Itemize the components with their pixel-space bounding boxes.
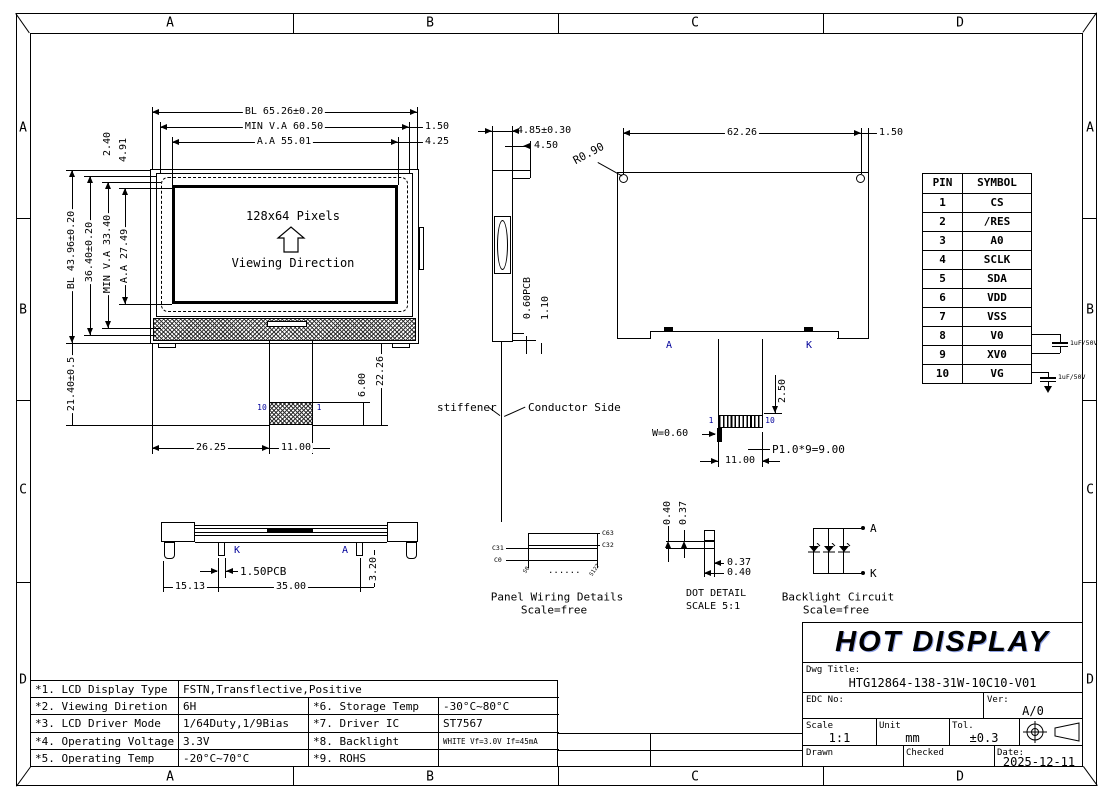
dim-conn-width: 11.00 <box>723 456 757 466</box>
table-row: 5SDA <box>923 269 1031 288</box>
company-banner: HOT DISPLAY <box>803 623 1082 663</box>
drawing-line <box>66 343 153 344</box>
drawing-line <box>823 767 824 786</box>
wiring-c0-label: C0 <box>494 557 502 564</box>
spec-label: *4. Operating Voltage <box>31 733 179 750</box>
drawing-line <box>492 170 530 171</box>
drawing-line <box>66 425 269 426</box>
drawing-line <box>718 339 719 415</box>
front-pin10-label: 10 <box>255 404 269 412</box>
drawing-line <box>478 131 514 132</box>
drawing-line <box>267 529 313 533</box>
dim-conn-offset: 2.50 <box>778 377 788 405</box>
table-row: 8V0 <box>923 326 1031 345</box>
spec-label: *9. ROHS <box>309 750 439 767</box>
edge-clip-a <box>356 542 363 556</box>
dim-hole-offset: 1.50 <box>877 128 905 138</box>
drawing-line <box>839 546 849 552</box>
drawing-line <box>278 227 304 252</box>
front-fpc-connector <box>269 402 313 425</box>
spec-label: *8. Backlight <box>309 733 439 750</box>
drawing-line <box>903 746 904 767</box>
dim-aa-height: A.A 27.49 <box>120 227 130 285</box>
drawing-line <box>813 573 863 574</box>
dot-dim-v2: 0.37 <box>679 499 689 527</box>
drawing-line <box>868 128 869 172</box>
dim-va-width: MIN V.A 60.50 <box>243 122 325 132</box>
viewing-direction-label: Viewing Direction <box>230 257 357 269</box>
zone-bottom-b: B <box>426 771 434 784</box>
dim-thickness2: 4.50 <box>534 141 558 151</box>
drawing-line: /RES <box>963 213 1031 231</box>
dot-detail-scale: SCALE 5:1 <box>686 602 740 612</box>
wiring-c31-label: C31 <box>492 545 504 552</box>
capacitor-plate <box>1040 377 1056 379</box>
drawing-line <box>665 541 671 548</box>
drawing-line <box>762 458 769 464</box>
drawing-line <box>492 126 493 170</box>
drawing-line <box>1031 353 1060 354</box>
projection-symbol-icon <box>1021 720 1083 744</box>
drawing-line <box>1019 719 1020 745</box>
edge-leg-right <box>406 542 417 559</box>
zone-top-b: B <box>426 17 434 30</box>
back-fpc-connector <box>718 415 763 428</box>
drawing-line <box>650 331 838 332</box>
spec-value <box>439 750 559 767</box>
drawing-line <box>269 425 270 454</box>
dim-edge-right: 1.50 <box>423 122 451 132</box>
company-name: HOT DISPLAY <box>835 626 1050 659</box>
dim-back-width: 62.26 <box>725 128 759 138</box>
back-hole-right <box>856 174 865 183</box>
edge-a-label: A <box>340 546 350 556</box>
front-view-foot-left <box>158 343 176 348</box>
drawing-line: VDD <box>963 289 1031 307</box>
wiring-c32-label: C32 <box>602 542 614 549</box>
drawing-line <box>861 526 865 530</box>
conductor-side-label: Conductor Side <box>528 402 621 413</box>
table-row: 1CS <box>923 193 1031 212</box>
dwg-title-row: Dwg Title: HTG12864-138-31W-10C10-V01 <box>803 663 1082 693</box>
side-view-fpc-tail <box>501 342 502 522</box>
zone-top-a: A <box>166 17 174 30</box>
spec-table: *1. LCD Display Type FSTN,Transflective,… <box>30 680 558 767</box>
cap1-label: 1uF/50V <box>1070 340 1097 347</box>
drawing-line <box>312 341 313 402</box>
drawing-line: A0 <box>963 232 1031 250</box>
drawing-line <box>312 402 370 403</box>
zone-right-d: D <box>1086 674 1094 687</box>
viewing-direction-arrow-icon <box>275 224 307 256</box>
drawing-line <box>528 545 600 546</box>
back-pad-k-label: K <box>804 341 814 351</box>
table-row: 2/RES <box>923 212 1031 231</box>
front-pin1-label: 1 <box>315 404 324 412</box>
drawing-line <box>764 413 782 414</box>
dim-tail-total: 22.26 <box>376 354 386 388</box>
zone-left-d: D <box>19 674 27 687</box>
drawing-line <box>84 176 156 177</box>
drawing-line <box>119 304 172 305</box>
zone-right-b: B <box>1086 304 1094 317</box>
led-icon <box>822 543 836 557</box>
spec-label: *3. LCD Driver Mode <box>31 715 179 732</box>
drawing-line <box>1055 723 1079 741</box>
sign-row: Drawn Checked Date: 2025-12-11 <box>803 746 1082 767</box>
drawing-line: 10 <box>923 365 963 383</box>
drawing-line <box>704 570 711 576</box>
drawing-line <box>160 124 167 130</box>
drawing-line: 6 <box>923 289 963 307</box>
dot-detail-title: DOT DETAIL <box>686 589 746 599</box>
backlight-cathode-label: K <box>870 568 877 579</box>
drawing-line: 5 <box>923 270 963 288</box>
zone-left-b: B <box>19 304 27 317</box>
scale-value: 1:1 <box>803 731 876 745</box>
spec-label: *2. Viewing Diretion <box>31 698 179 715</box>
back-pad-k <box>804 327 813 331</box>
drawing-line <box>711 458 718 464</box>
drawing-line <box>854 130 861 136</box>
drawing-line <box>69 336 75 343</box>
drawing-line <box>226 568 233 574</box>
table-row: 3A0 <box>923 231 1031 250</box>
drawing-line: VG <box>963 365 1031 383</box>
dim-edge-width: 35.00 <box>274 582 308 592</box>
back-pad-a-label: A <box>664 341 674 351</box>
drawing-line: SCLK <box>963 251 1031 269</box>
drawing-line: SYMBOL <box>963 174 1031 193</box>
drawing-line <box>1031 372 1048 373</box>
drawing-line <box>681 541 687 548</box>
drawing-line <box>823 13 824 33</box>
spec-value: ST7567 <box>439 715 559 732</box>
drawing-line <box>16 400 30 401</box>
drawing-line <box>817 543 820 546</box>
date-value: 2025-12-11 <box>994 755 1084 769</box>
drawn-label: Drawn <box>806 748 833 758</box>
ver-value: A/0 <box>983 704 1083 718</box>
zone-right-c: C <box>1086 484 1094 497</box>
zone-right-a: A <box>1086 122 1094 135</box>
drawing-line <box>558 750 802 751</box>
front-view-slot <box>267 321 307 327</box>
drawing-line <box>512 178 530 179</box>
drawing-line <box>530 170 531 178</box>
dim-conn-height: 6.00 <box>358 371 368 399</box>
spec-label: *5. Operating Temp <box>31 750 179 767</box>
edge-k-label: K <box>232 546 242 556</box>
drawing-line <box>541 343 542 354</box>
spec-value: -30°C~80°C <box>439 698 559 715</box>
drawing-line <box>709 431 716 437</box>
drawing-line <box>409 122 410 173</box>
back-pad-a <box>664 327 673 331</box>
drawing-line <box>666 548 714 549</box>
drawing-line <box>762 339 763 415</box>
zone-bottom-d: D <box>956 771 964 784</box>
drawing-line <box>861 133 878 134</box>
drawing-line <box>211 568 218 574</box>
drawing-line <box>558 13 559 33</box>
drawing-line <box>650 331 651 339</box>
back-view-body <box>617 172 869 339</box>
dot-dim-v1: 0.40 <box>663 499 673 527</box>
unit-label: Unit <box>879 721 901 731</box>
drawing-line <box>1060 346 1061 353</box>
drawing-line <box>402 124 409 130</box>
drawing-line <box>824 546 834 552</box>
drawing-line <box>714 560 721 566</box>
drawing-line <box>152 109 159 115</box>
dim-pcb-edge: 1.50PCB <box>240 566 286 577</box>
drawing-line <box>195 525 387 526</box>
zone-left-a: A <box>19 122 27 135</box>
edc-row: EDC No: Ver: A/0 <box>803 693 1082 719</box>
backlight-circuit-title: Backlight Circuit <box>780 592 897 603</box>
zone-bottom-c: C <box>691 771 699 784</box>
drawing-line <box>293 767 294 786</box>
wiring-c63-label: C63 <box>602 530 614 537</box>
dim-edge-left: 15.13 <box>173 582 207 592</box>
cap2-label: 1uF/50V <box>1058 374 1085 381</box>
edge-clip-k <box>218 542 225 556</box>
drawing-line <box>558 767 559 786</box>
zone-bottom-a: A <box>166 771 174 784</box>
front-view-side-bump <box>419 227 424 270</box>
scale-label: Scale <box>806 721 833 731</box>
drawing-line: 2 <box>923 213 963 231</box>
dim-pitch: P1.0*9=9.00 <box>772 444 845 455</box>
drawing-line <box>623 130 630 136</box>
drawing-line: 8 <box>923 327 963 345</box>
wiring-dots: ...... <box>548 567 581 576</box>
drawing-line <box>363 402 364 425</box>
edge-view-right-block <box>387 522 418 542</box>
dim-thickness: 4.85±0.30 <box>517 126 571 136</box>
spec-value: WHITE Vf=3.0V If=45mA <box>439 733 559 750</box>
spec-label: *6. Storage Temp <box>309 698 439 715</box>
drawing-line: PIN <box>923 174 963 193</box>
drawing-line: VSS <box>963 308 1031 326</box>
drawing-line <box>838 331 839 339</box>
tol-label: Tol. <box>952 721 974 731</box>
drawing-line <box>1083 400 1097 401</box>
drawing-line <box>528 533 600 534</box>
dim-edge-height: 3.20 <box>369 555 379 583</box>
backlight-circuit-scale: Scale=free <box>801 605 871 616</box>
drawing-line: SDA <box>963 270 1031 288</box>
drawing-line <box>410 109 417 115</box>
drawing-line <box>558 733 802 734</box>
dim-pcb-side: 0.60PCB <box>523 275 533 321</box>
dim-va-height: MIN V.A 33.40 <box>103 213 113 295</box>
dim-top-offset: 2.40 <box>103 130 113 158</box>
spec-value: 1/64Duty,1/9Bias <box>179 715 309 732</box>
dwg-title-label: Dwg Title: <box>806 665 860 675</box>
drawing-line <box>269 341 270 402</box>
drawing-line <box>102 328 161 329</box>
drawing-line <box>152 445 159 451</box>
drawing-line <box>861 128 862 174</box>
table-row: 9XV0 <box>923 345 1031 364</box>
drawing-line <box>1083 218 1097 219</box>
drawing-line <box>847 543 850 546</box>
capacitor-plate <box>1052 342 1068 344</box>
zone-left-c: C <box>19 484 27 497</box>
ground-icon <box>1044 386 1052 393</box>
side-view-lens <box>497 220 508 270</box>
drawing-line <box>650 733 651 767</box>
drawing-line <box>87 176 93 183</box>
drawing-line <box>832 543 835 546</box>
drawing-line <box>16 582 30 583</box>
drawing-line <box>225 558 226 578</box>
drawing-line <box>813 528 863 529</box>
drawing-line <box>1031 334 1060 335</box>
drawing-line <box>398 137 399 185</box>
drawing-line <box>651 331 837 340</box>
panel-wiring-scale: Scale=free <box>519 605 589 616</box>
dim-tail-height: 21.40±0.5 <box>67 355 77 413</box>
drawing-line <box>684 530 685 541</box>
drawing-line <box>668 526 669 541</box>
drawing-line <box>506 548 597 549</box>
unit-value: mm <box>876 731 949 745</box>
pin-table-header: PINSYMBOL <box>923 174 1031 193</box>
dwg-title-value: HTG12864-138-31W-10C10-V01 <box>803 676 1082 690</box>
spec-label: *1. LCD Display Type <box>31 681 179 698</box>
spec-value: 6H <box>179 698 309 715</box>
checked-label: Checked <box>906 748 944 758</box>
drawing-line: CS <box>963 194 1031 212</box>
drawing-line <box>512 340 536 341</box>
drawing-line <box>417 107 418 169</box>
title-block: HOT DISPLAY Dwg Title: HTG12864-138-31W-… <box>802 622 1083 767</box>
zone-top-d: D <box>956 17 964 30</box>
edge-leg-left <box>164 542 175 559</box>
drawing-line: 7 <box>923 308 963 326</box>
led-icon <box>837 543 851 557</box>
dim-glass-height: 36.40±0.20 <box>85 220 95 284</box>
drawing-line <box>87 328 93 335</box>
dot-detail-square <box>704 530 715 541</box>
drawing-line <box>195 535 387 536</box>
zone-top-c: C <box>691 17 699 30</box>
drawing-line <box>388 343 416 344</box>
dot-dim-h2: 0.40 <box>727 568 751 578</box>
drawing-line <box>528 533 529 568</box>
dim-bl-width: BL 65.26±0.20 <box>243 107 325 117</box>
drawing-line <box>714 541 715 577</box>
edge-view-left-block <box>161 522 195 542</box>
table-row: 10VG <box>923 364 1031 383</box>
dim-top-offset2: 4.91 <box>119 136 129 164</box>
drawing-line <box>1083 582 1097 583</box>
dim-pin-width: W=0.60 <box>652 429 688 439</box>
drawing-line <box>105 182 111 189</box>
drawing-line <box>809 546 819 552</box>
drawing-line <box>530 141 531 170</box>
led-icon <box>807 543 821 557</box>
drawing-line <box>122 297 128 304</box>
table-row: 6VDD <box>923 288 1031 307</box>
drawing-line <box>293 13 294 33</box>
tol-value: ±0.3 <box>949 731 1019 745</box>
drawing-line: 9 <box>923 346 963 364</box>
drawing-line: XV0 <box>963 346 1031 364</box>
dim-aa-width: A.A 55.01 <box>255 137 313 147</box>
backlight-anode-label: A <box>870 523 877 534</box>
dim-bl-height: BL 43.96±0.20 <box>67 209 77 291</box>
drawing-line <box>398 142 424 143</box>
table-row: 7VSS <box>923 307 1031 326</box>
drawing-line <box>391 139 398 145</box>
drawing-line <box>506 560 597 561</box>
drawing-line <box>66 170 150 171</box>
drawing-line <box>16 218 30 219</box>
spec-value: FSTN,Transflective,Positive <box>179 681 559 698</box>
drawing-line <box>666 541 714 542</box>
drawing-line <box>152 344 153 454</box>
drawing-line <box>861 571 865 575</box>
drawing-line <box>312 425 388 426</box>
drawing-line <box>748 449 770 450</box>
drawing-line: 4 <box>923 251 963 269</box>
drawing-line <box>485 128 492 134</box>
back-pin10-label: 10 <box>763 417 777 425</box>
drawing-line <box>512 333 524 334</box>
panel-wiring-title: Panel Wiring Details <box>489 592 625 603</box>
dim-corner-right: 4.25 <box>423 137 451 147</box>
screen-resolution-label: 128x64 Pixels <box>244 210 342 222</box>
table-row: 4SCLK <box>923 250 1031 269</box>
drawing-line: 1 <box>923 194 963 212</box>
drawing-line <box>262 445 269 451</box>
scale-row: Scale 1:1 Unit mm Tol. ±0.3 <box>803 719 1082 746</box>
drawing-line <box>152 107 153 169</box>
edc-label: EDC No: <box>806 695 844 705</box>
drawing-line <box>69 170 75 177</box>
drawing-line <box>105 321 111 328</box>
drawing-sheet: A B C D A B C D A B C D A B C D 128x64 P… <box>0 0 1113 799</box>
drawing-line <box>172 139 179 145</box>
drawing-line: V0 <box>963 327 1031 345</box>
drawing-line: 3 <box>923 232 963 250</box>
drawing-line <box>523 143 530 149</box>
spec-value: 3.3V <box>179 733 309 750</box>
drawing-line <box>1060 334 1061 342</box>
drawing-line <box>668 548 669 562</box>
drawing-line <box>718 432 719 467</box>
drawing-line <box>526 336 527 354</box>
drawing-line <box>122 188 128 195</box>
drawing-line <box>409 127 424 128</box>
spec-label: *7. Driver IC <box>309 715 439 732</box>
dim-gap-side: 1.10 <box>541 294 551 322</box>
drawing-line <box>772 406 778 413</box>
spec-value: -20°C~70°C <box>179 750 309 767</box>
dim-tail-left: 26.25 <box>194 443 228 453</box>
drawing-line <box>684 548 685 558</box>
pin-table: PINSYMBOL 1CS 2/RES 3A0 4SCLK 5SDA 6VDD … <box>922 173 1032 384</box>
back-pin1-label: 1 <box>707 417 716 425</box>
drawing-line <box>84 335 156 336</box>
dim-tail-width: 11.00 <box>279 443 313 453</box>
